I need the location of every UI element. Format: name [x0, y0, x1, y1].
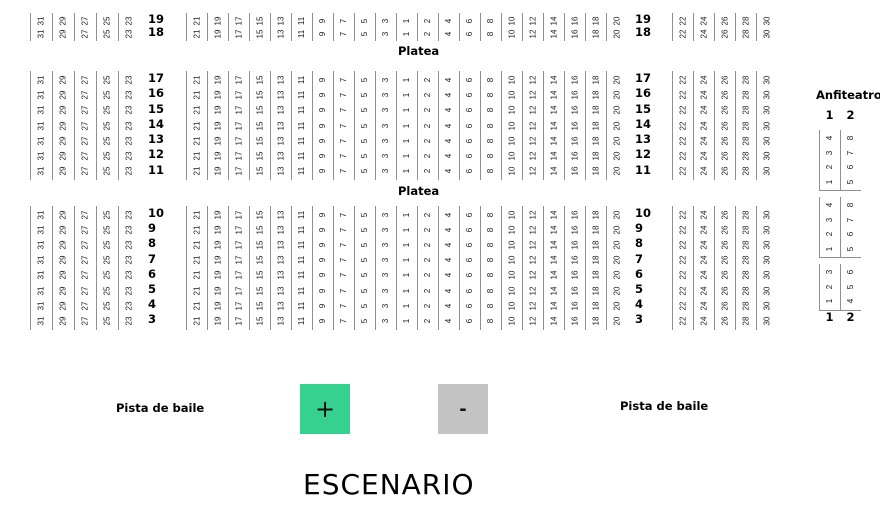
seat[interactable]: 10 [502, 133, 522, 148]
seat[interactable]: 23 [119, 222, 140, 237]
seat[interactable]: 3 [376, 27, 396, 40]
seat[interactable]: 7 [334, 237, 354, 252]
seat[interactable]: 27 [75, 207, 96, 222]
seat[interactable]: 3 [376, 14, 396, 27]
seat[interactable]: 12 [523, 72, 543, 87]
seat[interactable]: 26 [715, 14, 735, 27]
seat[interactable]: 15 [250, 148, 270, 163]
seat[interactable]: 9 [313, 237, 333, 252]
seat[interactable]: 2 [418, 253, 438, 268]
seat[interactable]: 8 [481, 87, 501, 102]
seat[interactable]: 7 [334, 103, 354, 118]
seat[interactable]: 13 [271, 103, 291, 118]
seat[interactable]: 19 [208, 27, 228, 40]
seat[interactable]: 2 [418, 27, 438, 40]
seat[interactable]: 9 [313, 207, 333, 222]
seat[interactable]: 10 [502, 87, 522, 102]
seat[interactable]: 1 [397, 27, 417, 40]
seat[interactable]: 31 [31, 222, 52, 237]
seat[interactable]: 4 [439, 268, 459, 283]
seat[interactable]: 7 [334, 148, 354, 163]
seat[interactable]: 23 [119, 118, 140, 133]
seat[interactable]: 12 [523, 14, 543, 27]
seat[interactable]: 16 [565, 87, 585, 102]
seat[interactable]: 7 [334, 283, 354, 298]
seat[interactable]: 6 [460, 148, 480, 163]
seat[interactable]: 24 [694, 222, 714, 237]
seat[interactable]: 18 [586, 27, 606, 40]
seat[interactable]: 1 [397, 222, 417, 237]
seat[interactable]: 1 [397, 237, 417, 252]
seat[interactable]: 11 [292, 222, 312, 237]
seat[interactable]: 6 [841, 265, 861, 280]
seat[interactable]: 9 [313, 148, 333, 163]
seat[interactable]: 22 [673, 253, 693, 268]
seat[interactable]: 23 [119, 313, 140, 328]
seat[interactable]: 18 [586, 313, 606, 328]
seat[interactable]: 18 [586, 253, 606, 268]
seat[interactable]: 24 [694, 207, 714, 222]
seat[interactable]: 1 [397, 283, 417, 298]
seat[interactable]: 9 [313, 298, 333, 313]
seat[interactable]: 30 [757, 237, 777, 252]
seat[interactable]: 23 [119, 148, 140, 163]
seat[interactable]: 19 [208, 237, 228, 252]
seat[interactable]: 23 [119, 164, 140, 179]
seat[interactable]: 16 [565, 207, 585, 222]
seat[interactable]: 25 [97, 222, 118, 237]
seat[interactable]: 23 [119, 87, 140, 102]
seat[interactable]: 11 [292, 118, 312, 133]
seat[interactable]: 8 [481, 164, 501, 179]
seat[interactable]: 25 [97, 72, 118, 87]
seat[interactable]: 26 [715, 313, 735, 328]
seat[interactable]: 28 [736, 298, 756, 313]
seat[interactable]: 11 [292, 237, 312, 252]
seat[interactable]: 23 [119, 27, 140, 40]
seat[interactable]: 10 [502, 14, 522, 27]
seat[interactable]: 8 [481, 14, 501, 27]
seat[interactable]: 10 [502, 268, 522, 283]
seat[interactable]: 1 [397, 148, 417, 163]
seat[interactable]: 4 [439, 148, 459, 163]
seat[interactable]: 6 [460, 164, 480, 179]
seat[interactable]: 15 [250, 103, 270, 118]
seat[interactable]: 29 [53, 14, 74, 27]
seat[interactable]: 16 [565, 103, 585, 118]
seat[interactable]: 14 [544, 207, 564, 222]
seat[interactable]: 3 [376, 148, 396, 163]
seat[interactable]: 8 [481, 72, 501, 87]
seat[interactable]: 3 [376, 298, 396, 313]
seat[interactable]: 14 [544, 27, 564, 40]
seat[interactable]: 15 [250, 253, 270, 268]
seat[interactable]: 11 [292, 253, 312, 268]
seat[interactable]: 11 [292, 72, 312, 87]
seat[interactable]: 20 [607, 164, 627, 179]
seat[interactable]: 4 [439, 283, 459, 298]
seat[interactable]: 19 [208, 103, 228, 118]
seat[interactable]: 4 [439, 87, 459, 102]
seat[interactable]: 17 [229, 133, 249, 148]
seat[interactable]: 29 [53, 148, 74, 163]
seat[interactable]: 28 [736, 133, 756, 148]
seat[interactable]: 15 [250, 298, 270, 313]
seat[interactable]: 6 [460, 27, 480, 40]
seat[interactable]: 10 [502, 298, 522, 313]
seat[interactable]: 9 [313, 164, 333, 179]
seat[interactable]: 23 [119, 207, 140, 222]
seat[interactable]: 30 [757, 148, 777, 163]
seat[interactable]: 6 [841, 160, 861, 175]
seat[interactable]: 10 [502, 164, 522, 179]
seat[interactable]: 21 [187, 237, 207, 252]
seat[interactable]: 5 [355, 72, 375, 87]
seat[interactable]: 7 [334, 207, 354, 222]
seat[interactable]: 11 [292, 207, 312, 222]
seat[interactable]: 31 [31, 27, 52, 40]
seat[interactable]: 3 [376, 118, 396, 133]
seat[interactable]: 3 [376, 207, 396, 222]
seat[interactable]: 20 [607, 103, 627, 118]
seat[interactable]: 15 [250, 14, 270, 27]
seat[interactable]: 22 [673, 298, 693, 313]
seat[interactable]: 5 [355, 298, 375, 313]
seat[interactable]: 25 [97, 133, 118, 148]
seat[interactable]: 16 [565, 298, 585, 313]
seat[interactable]: 26 [715, 148, 735, 163]
seat[interactable]: 13 [271, 283, 291, 298]
seat[interactable]: 3 [820, 213, 840, 228]
seat[interactable]: 1 [397, 164, 417, 179]
seat[interactable]: 25 [97, 268, 118, 283]
seat[interactable]: 29 [53, 222, 74, 237]
seat[interactable]: 4 [439, 164, 459, 179]
seat[interactable]: 30 [757, 103, 777, 118]
seat[interactable]: 13 [271, 268, 291, 283]
seat[interactable]: 24 [694, 87, 714, 102]
seat[interactable]: 7 [334, 118, 354, 133]
seat[interactable]: 25 [97, 164, 118, 179]
seat[interactable]: 6 [460, 253, 480, 268]
seat[interactable]: 28 [736, 118, 756, 133]
seat[interactable]: 28 [736, 313, 756, 328]
seat[interactable]: 20 [607, 27, 627, 40]
seat[interactable]: 29 [53, 253, 74, 268]
seat[interactable]: 24 [694, 27, 714, 40]
seat[interactable]: 8 [481, 268, 501, 283]
seat[interactable]: 5 [355, 313, 375, 328]
seat[interactable]: 11 [292, 133, 312, 148]
seat[interactable]: 26 [715, 298, 735, 313]
seat[interactable]: 31 [31, 253, 52, 268]
seat[interactable]: 1 [397, 103, 417, 118]
seat[interactable]: 3 [376, 268, 396, 283]
seat[interactable]: 19 [208, 268, 228, 283]
seat[interactable]: 27 [75, 148, 96, 163]
seat[interactable]: 5 [355, 87, 375, 102]
seat[interactable]: 10 [502, 72, 522, 87]
seat[interactable]: 20 [607, 298, 627, 313]
seat[interactable]: 20 [607, 253, 627, 268]
seat[interactable]: 13 [271, 148, 291, 163]
seat[interactable]: 27 [75, 253, 96, 268]
seat[interactable]: 11 [292, 298, 312, 313]
seat[interactable]: 22 [673, 27, 693, 40]
seat[interactable]: 30 [757, 253, 777, 268]
seat[interactable]: 1 [397, 87, 417, 102]
seat[interactable]: 5 [355, 283, 375, 298]
seat[interactable]: 14 [544, 118, 564, 133]
seat[interactable]: 22 [673, 72, 693, 87]
seat[interactable]: 13 [271, 313, 291, 328]
seat[interactable]: 6 [460, 283, 480, 298]
seat[interactable]: 12 [523, 164, 543, 179]
seat[interactable]: 12 [523, 313, 543, 328]
seat[interactable]: 7 [334, 164, 354, 179]
seat[interactable]: 7 [334, 14, 354, 27]
seat[interactable]: 22 [673, 103, 693, 118]
seat[interactable]: 6 [460, 313, 480, 328]
seat[interactable]: 16 [565, 313, 585, 328]
seat[interactable]: 18 [586, 87, 606, 102]
seat[interactable]: 23 [119, 133, 140, 148]
seat[interactable]: 24 [694, 164, 714, 179]
seat[interactable]: 29 [53, 268, 74, 283]
seat[interactable]: 7 [841, 213, 861, 228]
seat[interactable]: 4 [820, 131, 840, 146]
seat[interactable]: 31 [31, 298, 52, 313]
seat[interactable]: 18 [586, 72, 606, 87]
seat[interactable]: 3 [820, 146, 840, 161]
seat[interactable]: 30 [757, 133, 777, 148]
seat[interactable]: 13 [271, 27, 291, 40]
seat[interactable]: 30 [757, 298, 777, 313]
seat[interactable]: 3 [376, 72, 396, 87]
seat[interactable]: 22 [673, 268, 693, 283]
seat[interactable]: 13 [271, 207, 291, 222]
seat[interactable]: 10 [502, 237, 522, 252]
seat[interactable]: 8 [481, 283, 501, 298]
seat[interactable]: 8 [481, 148, 501, 163]
seat[interactable]: 21 [187, 207, 207, 222]
seat[interactable]: 28 [736, 164, 756, 179]
seat[interactable]: 22 [673, 14, 693, 27]
seat[interactable]: 2 [418, 222, 438, 237]
seat[interactable]: 13 [271, 237, 291, 252]
seat[interactable]: 20 [607, 268, 627, 283]
seat[interactable]: 30 [757, 27, 777, 40]
seat[interactable]: 17 [229, 283, 249, 298]
seat[interactable]: 23 [119, 72, 140, 87]
seat[interactable]: 23 [119, 253, 140, 268]
seat[interactable]: 31 [31, 72, 52, 87]
seat[interactable]: 5 [355, 103, 375, 118]
seat[interactable]: 1 [397, 72, 417, 87]
seat[interactable]: 21 [187, 313, 207, 328]
seat[interactable]: 9 [313, 103, 333, 118]
seat[interactable]: 13 [271, 72, 291, 87]
seat[interactable]: 26 [715, 72, 735, 87]
seat[interactable]: 25 [97, 118, 118, 133]
seat[interactable]: 19 [208, 207, 228, 222]
seat[interactable]: 27 [75, 222, 96, 237]
seat[interactable]: 17 [229, 237, 249, 252]
seat[interactable]: 8 [481, 27, 501, 40]
seat[interactable]: 15 [250, 118, 270, 133]
seat[interactable]: 6 [460, 14, 480, 27]
seat[interactable]: 23 [119, 103, 140, 118]
seat[interactable]: 12 [523, 268, 543, 283]
seat[interactable]: 29 [53, 87, 74, 102]
seat[interactable]: 27 [75, 298, 96, 313]
seat[interactable]: 25 [97, 283, 118, 298]
seat[interactable]: 5 [355, 14, 375, 27]
seat[interactable]: 31 [31, 133, 52, 148]
seat[interactable]: 3 [376, 133, 396, 148]
seat[interactable]: 2 [418, 14, 438, 27]
seat[interactable]: 22 [673, 283, 693, 298]
seat[interactable]: 31 [31, 164, 52, 179]
seat[interactable]: 7 [841, 146, 861, 161]
seat[interactable]: 18 [586, 118, 606, 133]
seat[interactable]: 31 [31, 268, 52, 283]
seat[interactable]: 28 [736, 103, 756, 118]
seat[interactable]: 14 [544, 148, 564, 163]
seat[interactable]: 20 [607, 222, 627, 237]
seat[interactable]: 5 [841, 280, 861, 295]
seat[interactable]: 15 [250, 133, 270, 148]
seat[interactable]: 13 [271, 222, 291, 237]
seat[interactable]: 3 [376, 222, 396, 237]
seat[interactable]: 14 [544, 237, 564, 252]
seat[interactable]: 29 [53, 237, 74, 252]
seat[interactable]: 9 [313, 253, 333, 268]
seat[interactable]: 6 [460, 118, 480, 133]
seat[interactable]: 25 [97, 253, 118, 268]
seat[interactable]: 6 [460, 237, 480, 252]
seat[interactable]: 2 [418, 283, 438, 298]
seat[interactable]: 28 [736, 268, 756, 283]
seat[interactable]: 12 [523, 133, 543, 148]
seat[interactable]: 15 [250, 222, 270, 237]
seat[interactable]: 6 [460, 103, 480, 118]
seat[interactable]: 21 [187, 133, 207, 148]
seat[interactable]: 28 [736, 148, 756, 163]
seat[interactable]: 17 [229, 27, 249, 40]
seat[interactable]: 3 [376, 313, 396, 328]
seat[interactable]: 10 [502, 103, 522, 118]
seat[interactable]: 17 [229, 268, 249, 283]
seat[interactable]: 26 [715, 207, 735, 222]
seat[interactable]: 1 [397, 313, 417, 328]
seat[interactable]: 27 [75, 72, 96, 87]
seat[interactable]: 19 [208, 87, 228, 102]
seat[interactable]: 17 [229, 14, 249, 27]
seat[interactable]: 22 [673, 313, 693, 328]
seat[interactable]: 28 [736, 207, 756, 222]
seat[interactable]: 14 [544, 283, 564, 298]
seat[interactable]: 3 [376, 253, 396, 268]
seat[interactable]: 12 [523, 27, 543, 40]
seat[interactable]: 29 [53, 164, 74, 179]
seat[interactable]: 16 [565, 118, 585, 133]
seat[interactable]: 16 [565, 283, 585, 298]
seat[interactable]: 22 [673, 118, 693, 133]
seat[interactable]: 24 [694, 103, 714, 118]
seat[interactable]: 14 [544, 14, 564, 27]
seat[interactable]: 8 [481, 133, 501, 148]
seat[interactable]: 24 [694, 148, 714, 163]
seat[interactable]: 21 [187, 268, 207, 283]
seat[interactable]: 10 [502, 283, 522, 298]
seat[interactable]: 7 [334, 268, 354, 283]
seat[interactable]: 23 [119, 237, 140, 252]
seat[interactable]: 10 [502, 207, 522, 222]
seat[interactable]: 12 [523, 253, 543, 268]
seat[interactable]: 5 [355, 207, 375, 222]
seat[interactable]: 6 [841, 227, 861, 242]
seat[interactable]: 2 [820, 160, 840, 175]
seat[interactable]: 18 [586, 148, 606, 163]
seat[interactable]: 29 [53, 27, 74, 40]
seat[interactable]: 6 [460, 133, 480, 148]
seat[interactable]: 29 [53, 133, 74, 148]
seat[interactable]: 14 [544, 268, 564, 283]
seat[interactable]: 6 [460, 87, 480, 102]
seat[interactable]: 5 [841, 242, 861, 257]
seat[interactable]: 9 [313, 72, 333, 87]
seat[interactable]: 19 [208, 118, 228, 133]
seat[interactable]: 12 [523, 148, 543, 163]
seat[interactable]: 24 [694, 237, 714, 252]
seat[interactable]: 28 [736, 14, 756, 27]
seat[interactable]: 5 [841, 175, 861, 190]
seat[interactable]: 27 [75, 164, 96, 179]
seat[interactable]: 18 [586, 207, 606, 222]
seat[interactable]: 21 [187, 164, 207, 179]
seat[interactable]: 3 [376, 283, 396, 298]
seat[interactable]: 18 [586, 164, 606, 179]
seat[interactable]: 4 [439, 133, 459, 148]
seat[interactable]: 12 [523, 237, 543, 252]
seat[interactable]: 17 [229, 118, 249, 133]
seat[interactable]: 27 [75, 237, 96, 252]
seat[interactable]: 23 [119, 14, 140, 27]
seat[interactable]: 24 [694, 268, 714, 283]
seat[interactable]: 16 [565, 14, 585, 27]
seat[interactable]: 27 [75, 14, 96, 27]
seat[interactable]: 6 [460, 298, 480, 313]
seat[interactable]: 11 [292, 103, 312, 118]
seat[interactable]: 13 [271, 87, 291, 102]
seat[interactable]: 14 [544, 298, 564, 313]
seat[interactable]: 9 [313, 87, 333, 102]
seat[interactable]: 1 [397, 14, 417, 27]
seat[interactable]: 12 [523, 87, 543, 102]
seat[interactable]: 15 [250, 207, 270, 222]
seat[interactable]: 2 [418, 268, 438, 283]
seat[interactable]: 1 [397, 133, 417, 148]
seat[interactable]: 23 [119, 298, 140, 313]
seat[interactable]: 28 [736, 283, 756, 298]
seat[interactable]: 13 [271, 118, 291, 133]
seat[interactable]: 12 [523, 283, 543, 298]
seat[interactable]: 17 [229, 103, 249, 118]
seat[interactable]: 5 [355, 118, 375, 133]
seat[interactable]: 9 [313, 283, 333, 298]
seat[interactable]: 26 [715, 103, 735, 118]
